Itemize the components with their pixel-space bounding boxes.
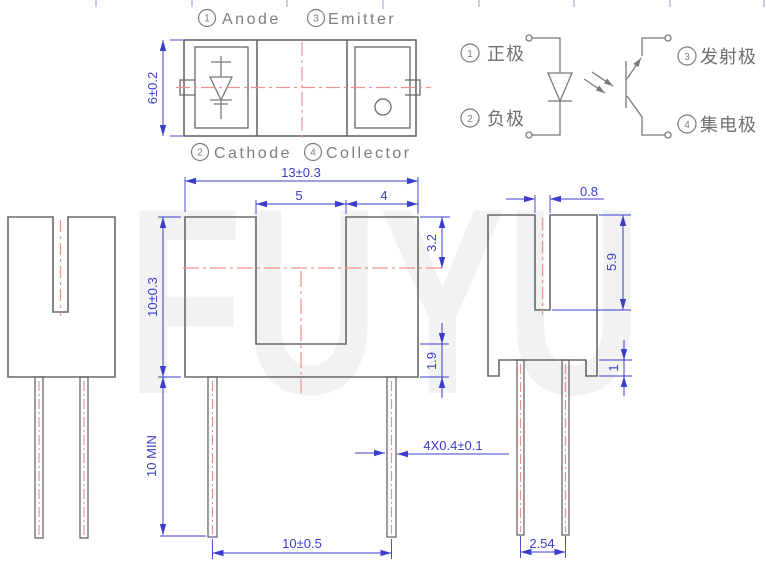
dim-lead-pitch: 2.54 — [521, 536, 566, 558]
pin-label-anode: 1 Anode — [199, 10, 281, 29]
svg-text:4: 4 — [684, 120, 690, 131]
svg-text:5: 5 — [295, 188, 302, 203]
svg-text:6±0.2: 6±0.2 — [145, 72, 160, 104]
terminal-node — [665, 35, 671, 41]
terminal-node — [526, 132, 532, 138]
svg-text:正极: 正极 — [487, 44, 525, 64]
svg-text:1.9: 1.9 — [424, 352, 439, 370]
svg-text:Anode: Anode — [222, 11, 281, 28]
svg-text:4: 4 — [310, 148, 316, 159]
svg-text:集电极: 集电极 — [700, 115, 757, 135]
svg-text:1: 1 — [467, 49, 473, 60]
svg-text:2: 2 — [467, 114, 473, 125]
pin-label-emitter-cn: 3 发射极 — [678, 47, 757, 67]
ruler-ticks — [96, 0, 764, 9]
pin-label-positive: 1 正极 — [461, 44, 525, 64]
terminal-node — [526, 35, 532, 41]
svg-text:4X0.4±0.1: 4X0.4±0.1 — [423, 438, 482, 453]
svg-text:3: 3 — [684, 52, 690, 63]
svg-text:3: 3 — [313, 14, 319, 25]
svg-text:10 MIN: 10 MIN — [144, 435, 159, 477]
svg-text:2.54: 2.54 — [529, 536, 554, 551]
svg-text:负极: 负极 — [487, 109, 525, 129]
pin-label-emitter: 3 Emitter — [308, 10, 397, 29]
svg-text:13±0.3: 13±0.3 — [281, 165, 321, 180]
phototransistor-symbol-icon — [626, 35, 671, 138]
dim-lead-span: 10±0.5 — [213, 536, 392, 559]
datasheet-drawing: FUYU 1 Anode 3 Emitter 2 Cathode — [0, 0, 766, 565]
svg-text:发射极: 发射极 — [700, 47, 757, 67]
top-view: 1 Anode 3 Emitter 2 Cathode 4 Collector — [145, 10, 431, 163]
svg-text:10±0.5: 10±0.5 — [282, 536, 322, 551]
svg-text:Collector: Collector — [326, 145, 412, 162]
drawing-svg: FUYU 1 Anode 3 Emitter 2 Cathode — [0, 0, 766, 565]
svg-text:4: 4 — [380, 188, 387, 203]
terminal-node — [665, 132, 671, 138]
side-view-left — [8, 217, 115, 538]
svg-text:1: 1 — [606, 364, 621, 371]
left-body-outline — [8, 217, 115, 377]
svg-text:3.2: 3.2 — [424, 234, 439, 252]
led-symbol-icon — [526, 35, 572, 138]
detector-lens-icon — [375, 99, 391, 115]
svg-text:1: 1 — [204, 14, 210, 25]
light-arrows-icon — [584, 72, 613, 93]
svg-text:5.9: 5.9 — [604, 253, 619, 271]
svg-text:Emitter: Emitter — [328, 11, 396, 28]
svg-text:10±0.3: 10±0.3 — [145, 277, 160, 317]
svg-text:Cathode: Cathode — [214, 145, 292, 162]
schematic: 1 正极 2 负极 3 发射极 4 集电极 — [461, 35, 757, 138]
pin-label-negative: 2 负极 — [461, 109, 525, 129]
svg-text:0.8: 0.8 — [580, 184, 598, 199]
svg-text:2: 2 — [197, 148, 203, 159]
pin-label-collector-cn: 4 集电极 — [678, 115, 757, 135]
